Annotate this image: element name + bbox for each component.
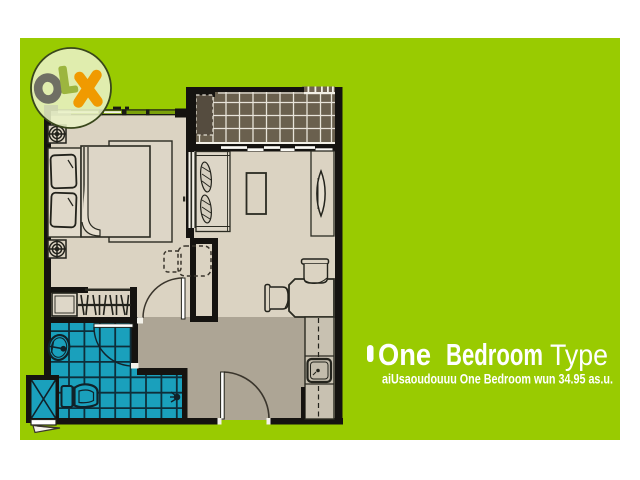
svg-text:Type: Type — [550, 339, 608, 372]
svg-text:aiUsaoudouuu One Bedroom wun 3: aiUsaoudouuu One Bedroom wun 34.95 as.u. — [382, 372, 613, 388]
svg-text:One: One — [378, 337, 431, 372]
svg-text:Bedroom: Bedroom — [446, 337, 543, 372]
